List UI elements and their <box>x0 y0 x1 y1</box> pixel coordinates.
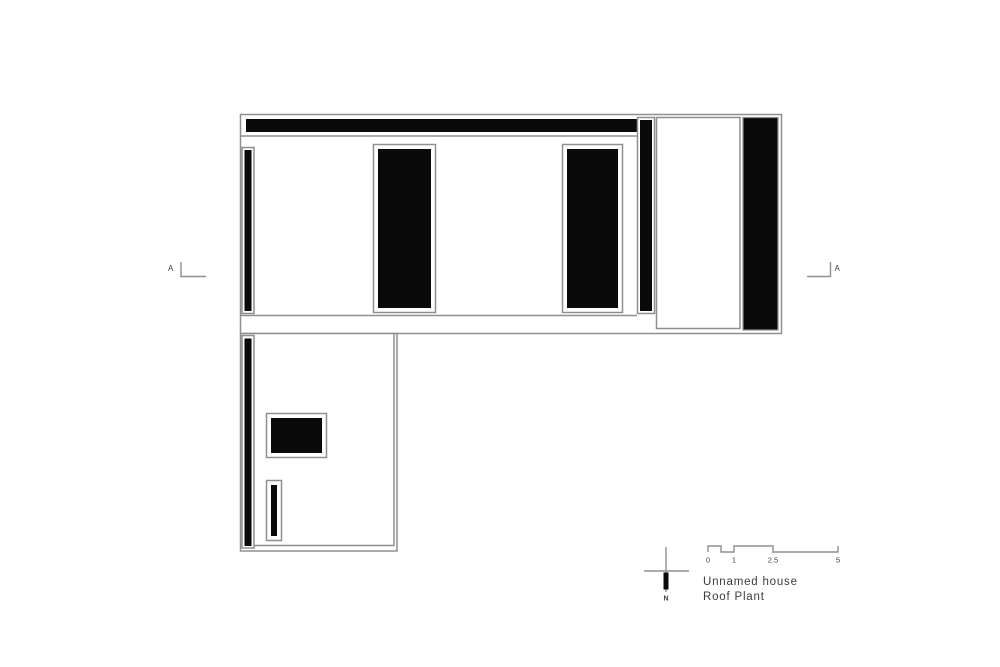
north-needle <box>664 573 669 590</box>
left-wall-strip <box>245 150 252 311</box>
scale-bar-path <box>708 546 838 552</box>
north-indicator: N <box>644 547 689 603</box>
roof-opening-1 <box>378 149 431 308</box>
title-block: Unnamed house Roof Plant <box>703 576 798 603</box>
lower-wing <box>241 334 398 552</box>
section-letter-right: A <box>835 264 841 273</box>
scale-label-2: 2.5 <box>768 556 778 565</box>
scale-label-0: 0 <box>706 556 710 565</box>
divider-wall <box>640 120 652 311</box>
top-parapet-bar <box>246 119 637 132</box>
right-terrace-outline <box>657 118 741 329</box>
vent-strip <box>271 485 277 536</box>
drawing-title: Roof Plant <box>703 591 765 603</box>
scale-label-3: 5 <box>836 556 840 565</box>
roof-plan-svg: A A N 0 1 2.5 5 Unnamed house Roof Plant <box>0 0 1000 667</box>
section-bracket-right <box>807 262 831 277</box>
scale-bar: 0 1 2.5 5 <box>706 546 840 565</box>
section-marker-left: A <box>168 262 206 277</box>
north-label: N <box>663 596 668 603</box>
right-roof-slab <box>743 118 778 331</box>
section-marker-right: A <box>807 262 841 277</box>
top-wing <box>241 115 782 334</box>
skylight-box <box>271 418 322 453</box>
section-bracket-left <box>181 262 206 277</box>
roof-opening-2 <box>567 149 618 308</box>
section-letter-left: A <box>168 264 174 273</box>
lower-left-wall-strip <box>245 339 252 547</box>
project-title: Unnamed house <box>703 576 798 588</box>
scale-label-1: 1 <box>732 556 736 565</box>
roof-plan-page: A A N 0 1 2.5 5 Unnamed house Roof Plant <box>0 0 1000 667</box>
